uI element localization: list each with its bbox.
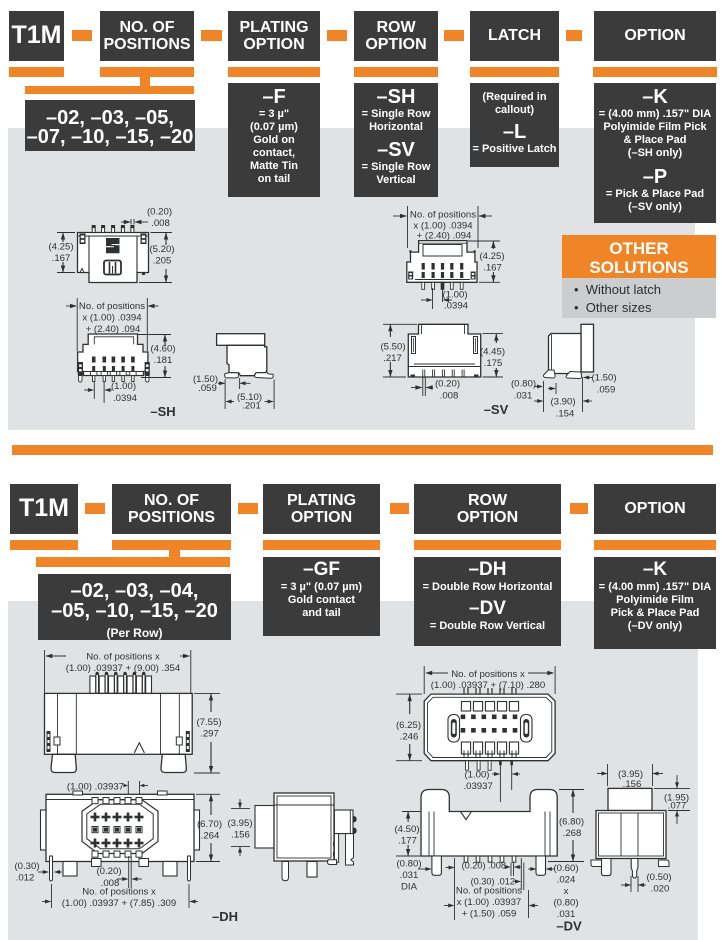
svg-text:.201: .201 xyxy=(242,400,261,411)
svg-text:(5.50): (5.50) xyxy=(380,342,405,353)
svg-text:–DV: –DV xyxy=(556,919,582,934)
svg-text:(0.20): (0.20) xyxy=(96,866,121,877)
svg-text:(1.00) .03937 + (9.00) .354: (1.00) .03937 + (9.00) .354 xyxy=(66,663,181,674)
svg-text:(0.30): (0.30) xyxy=(14,861,39,872)
svg-text:.154: .154 xyxy=(556,409,575,420)
svg-text:.297: .297 xyxy=(200,729,219,740)
svg-text:.264: .264 xyxy=(201,831,220,842)
svg-text:.167: .167 xyxy=(483,263,502,274)
svg-text:(4.45): (4.45) xyxy=(480,347,505,358)
svg-text:.020: .020 xyxy=(651,884,670,895)
svg-text:(1.00): (1.00) xyxy=(464,770,489,781)
svg-text:(1.00): (1.00) xyxy=(111,381,136,392)
svg-text:.0394: .0394 xyxy=(113,393,138,404)
svg-text:.175: .175 xyxy=(484,358,503,369)
svg-text:.059: .059 xyxy=(198,383,217,394)
svg-text:(1.50): (1.50) xyxy=(591,373,616,384)
svg-text:(3.95): (3.95) xyxy=(227,818,252,829)
svg-text:.156: .156 xyxy=(623,779,642,790)
svg-text:No. of positions x: No. of positions x xyxy=(86,652,160,663)
svg-text:.03937: .03937 xyxy=(463,781,492,792)
svg-text:.059: .059 xyxy=(597,385,616,396)
svg-text:.024: .024 xyxy=(557,875,576,886)
svg-text:DIA: DIA xyxy=(401,882,418,893)
svg-text:No. of positions x: No. of positions x xyxy=(82,887,156,898)
svg-text:–DH: –DH xyxy=(212,909,238,924)
svg-text:.181: .181 xyxy=(154,355,173,366)
svg-text:.246: .246 xyxy=(400,732,419,743)
svg-text:.031: .031 xyxy=(514,391,533,402)
svg-text:(5.20): (5.20) xyxy=(149,244,174,255)
svg-text:(3.90): (3.90) xyxy=(550,397,575,408)
svg-text:(6.70): (6.70) xyxy=(197,819,222,830)
svg-text:(4.50): (4.50) xyxy=(394,824,419,835)
svg-text:.008: .008 xyxy=(151,218,170,229)
svg-text:.156: .156 xyxy=(231,830,250,841)
svg-text:(0.20): (0.20) xyxy=(435,379,460,390)
svg-text:(0.50): (0.50) xyxy=(646,872,671,883)
svg-text:(4.60): (4.60) xyxy=(150,344,175,355)
svg-text:No. of positions: No. of positions xyxy=(456,886,522,897)
svg-text:x (1.00) .0394: x (1.00) .0394 xyxy=(82,313,142,324)
svg-text:–SV: –SV xyxy=(484,402,509,417)
svg-text:.205: .205 xyxy=(153,256,172,267)
svg-text:–SH: –SH xyxy=(150,404,175,419)
svg-text:(1.00) .03937 + (7.85) .309: (1.00) .03937 + (7.85) .309 xyxy=(62,898,176,909)
svg-text:.268: .268 xyxy=(563,828,582,839)
svg-text:(1.00): (1.00) xyxy=(442,290,467,301)
svg-text:(0.80): (0.80) xyxy=(553,898,578,909)
svg-text:No. of positions x: No. of positions x xyxy=(451,669,525,680)
svg-text:(0.60): (0.60) xyxy=(553,863,578,874)
svg-text:.217: .217 xyxy=(383,353,402,364)
svg-text:.167: .167 xyxy=(52,253,71,264)
svg-text:+ (1.50) .059: + (1.50) .059 xyxy=(462,909,517,920)
svg-text:.177: .177 xyxy=(398,836,417,847)
svg-text:x (1.00) .03937: x (1.00) .03937 xyxy=(457,897,522,908)
svg-text:(0.80): (0.80) xyxy=(511,379,536,390)
svg-text:(6.80): (6.80) xyxy=(559,817,584,828)
svg-text:.031: .031 xyxy=(400,870,419,881)
svg-text:x: x xyxy=(564,886,569,897)
svg-text:(0.20): (0.20) xyxy=(147,207,172,218)
svg-text:.008: .008 xyxy=(440,391,459,402)
svg-text:.077: .077 xyxy=(668,801,687,812)
svg-text:No. of positions: No. of positions xyxy=(410,210,476,221)
svg-text:(7.55): (7.55) xyxy=(196,717,221,728)
svg-text:.012: .012 xyxy=(16,873,35,884)
svg-text:(0.80): (0.80) xyxy=(396,859,421,870)
svg-text:(4.25): (4.25) xyxy=(48,242,73,253)
svg-text:.0394: .0394 xyxy=(444,301,469,312)
svg-text:(6.25): (6.25) xyxy=(396,720,421,731)
svg-text:(4.25): (4.25) xyxy=(479,251,504,262)
svg-text:(0.20) .008: (0.20) .008 xyxy=(462,861,506,871)
svg-text:No. of positions: No. of positions xyxy=(79,301,145,312)
